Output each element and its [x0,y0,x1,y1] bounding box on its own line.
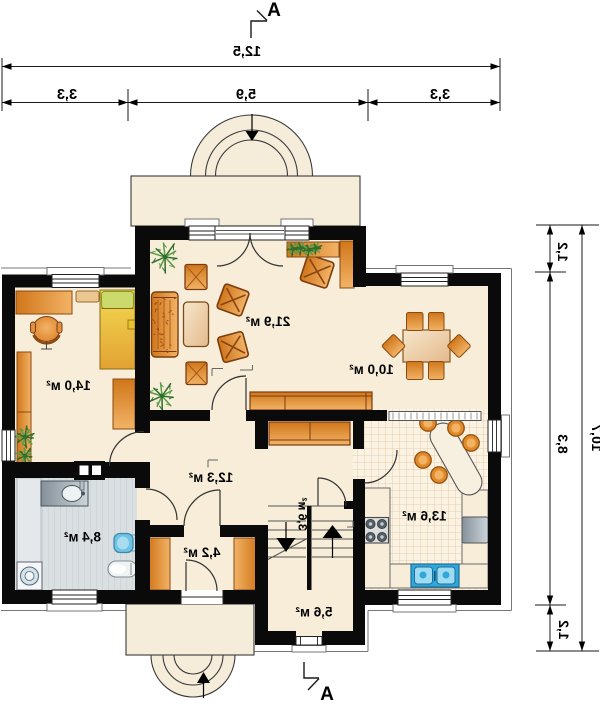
svg-text:3,3: 3,3 [430,87,450,103]
svg-text:1,2: 1,2 [556,620,572,640]
svg-text:10,0 м²: 10,0 м² [349,362,394,377]
svg-text:3,3: 3,3 [57,87,77,103]
svg-text:10,7: 10,7 [589,424,600,451]
svg-text:4,2 м²: 4,2 м² [183,545,221,560]
svg-text:5,9: 5,9 [236,87,256,103]
svg-text:5,6 м²: 5,6 м² [295,605,333,620]
svg-text:21,9 м²: 21,9 м² [245,314,290,329]
svg-text:13,6 м²: 13,6 м² [402,509,447,524]
svg-text:12,5: 12,5 [233,44,261,60]
svg-text:8,4 м²: 8,4 м² [63,530,101,545]
svg-text:12,3 м²: 12,3 м² [188,470,233,485]
svg-text:1,2: 1,2 [555,242,571,262]
svg-text:14,0 м²: 14,0 м² [46,378,91,393]
svg-text:A: A [320,684,334,700]
svg-text:A: A [267,0,281,21]
svg-text:8,3: 8,3 [555,434,571,454]
svg-text:3,6 м²: 3,6 м² [296,498,310,531]
